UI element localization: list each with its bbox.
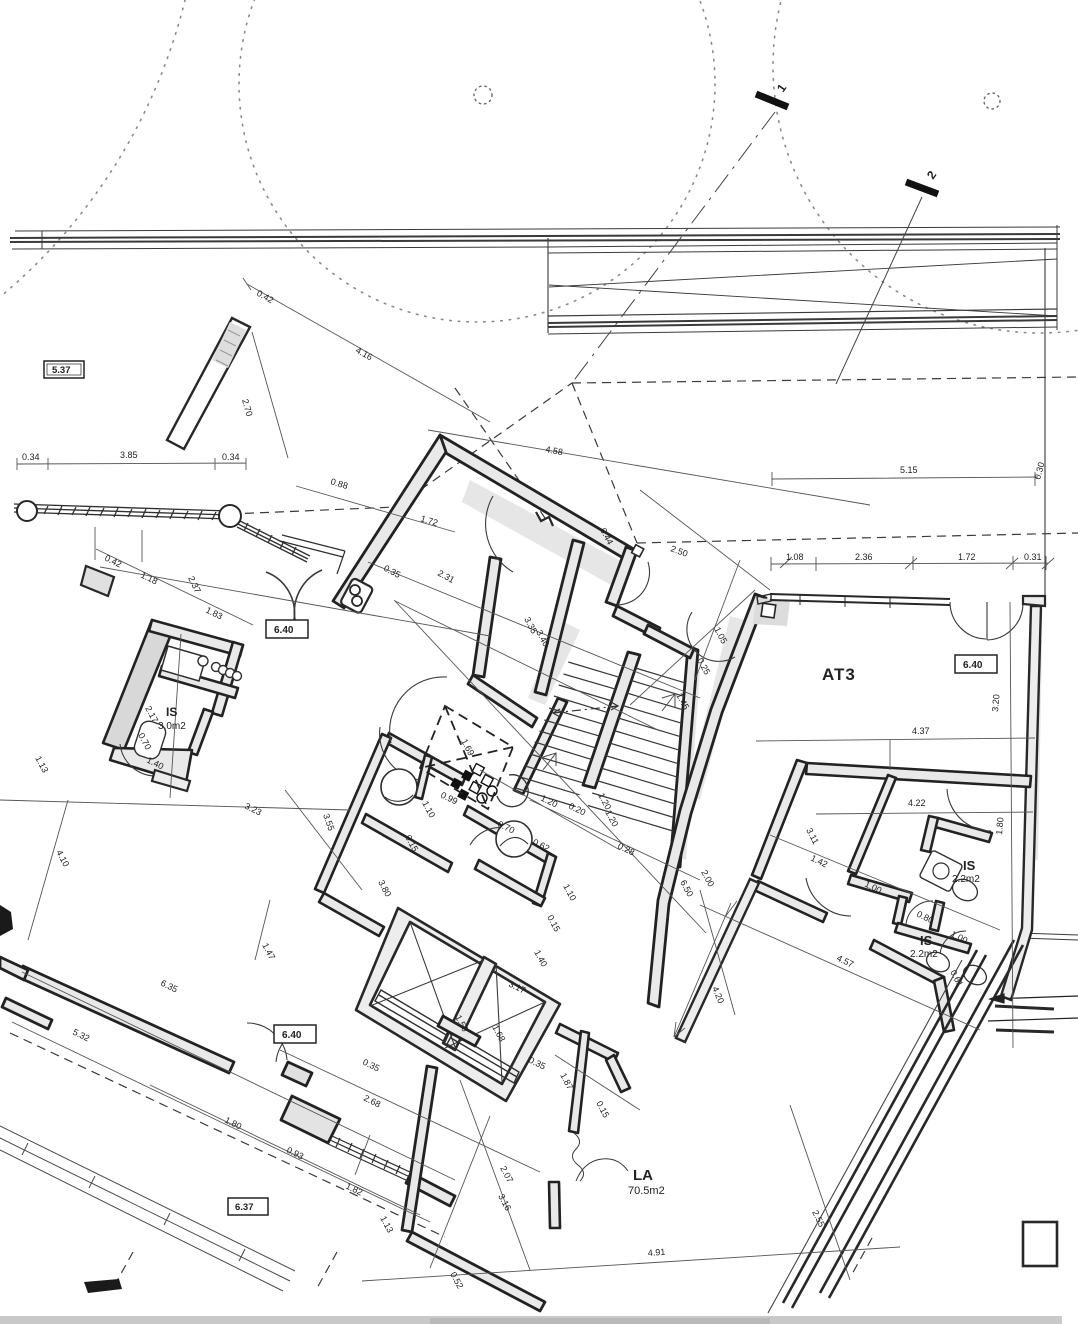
svg-text:4.37: 4.37 — [912, 726, 930, 736]
svg-text:5.15: 5.15 — [900, 465, 918, 475]
svg-text:LA: LA — [633, 1167, 653, 1184]
svg-text:IS: IS — [920, 933, 933, 948]
svg-text:6.40: 6.40 — [274, 625, 294, 636]
svg-text:0.34: 0.34 — [22, 452, 40, 462]
svg-text:2.2m2: 2.2m2 — [910, 949, 938, 960]
svg-text:0.31: 0.31 — [1024, 552, 1042, 562]
svg-text:4.22: 4.22 — [908, 798, 926, 808]
svg-text:4.91: 4.91 — [647, 1247, 665, 1258]
svg-text:1.72: 1.72 — [958, 552, 976, 562]
svg-text:6.40: 6.40 — [963, 660, 983, 671]
svg-text:6.40: 6.40 — [282, 1030, 302, 1041]
svg-text:1.08: 1.08 — [786, 552, 804, 562]
svg-text:1.80: 1.80 — [994, 817, 1005, 835]
svg-text:AT3: AT3 — [822, 665, 856, 684]
svg-text:6.37: 6.37 — [235, 1202, 254, 1213]
svg-text:IS: IS — [963, 858, 976, 873]
svg-text:70.5m2: 70.5m2 — [628, 1185, 665, 1197]
svg-text:2.36: 2.36 — [855, 552, 873, 562]
svg-text:3.0m2: 3.0m2 — [158, 721, 186, 732]
svg-text:3.20: 3.20 — [990, 694, 1001, 712]
svg-text:3.85: 3.85 — [120, 450, 138, 460]
svg-text:5.37: 5.37 — [52, 365, 71, 376]
svg-text:2.2m2: 2.2m2 — [952, 874, 980, 885]
svg-text:IS: IS — [166, 705, 177, 719]
svg-text:0.34: 0.34 — [222, 452, 240, 462]
